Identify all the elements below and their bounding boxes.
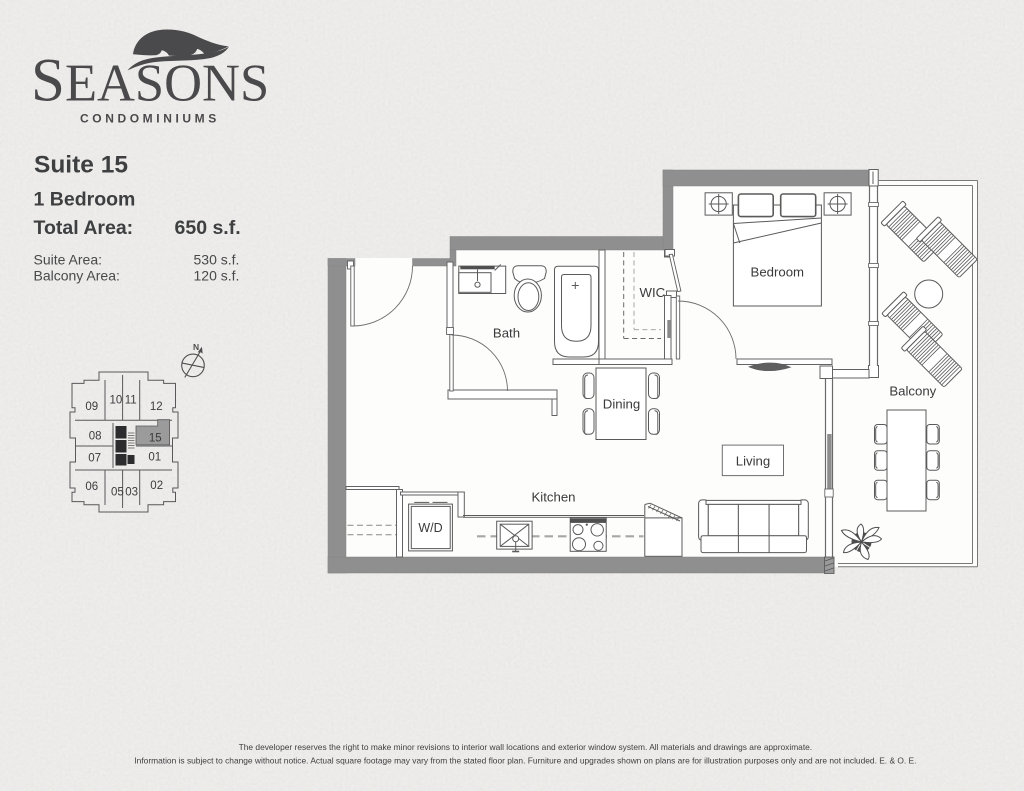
- svg-text:08: 08: [89, 431, 102, 443]
- svg-text:N: N: [193, 342, 199, 352]
- svg-text:The developer reserves the rig: The developer reserves the right to make…: [239, 742, 812, 752]
- svg-text:Bedroom: Bedroom: [751, 264, 805, 279]
- svg-text:CONDOMINIUMS: CONDOMINIUMS: [80, 112, 220, 126]
- svg-text:07: 07: [88, 453, 101, 465]
- svg-text:650 s.f.: 650 s.f.: [175, 217, 241, 239]
- svg-text:11: 11: [125, 395, 137, 407]
- svg-text:02: 02: [150, 480, 163, 492]
- svg-text:SEASONS: SEASONS: [31, 48, 269, 115]
- svg-text:1 Bedroom: 1 Bedroom: [34, 189, 136, 211]
- svg-text:Balcony Area:: Balcony Area:: [34, 268, 120, 284]
- svg-text:05: 05: [111, 487, 124, 499]
- svg-text:09: 09: [85, 401, 98, 413]
- svg-text:01: 01: [148, 452, 161, 464]
- svg-text:Kitchen: Kitchen: [532, 490, 576, 505]
- svg-text:Living: Living: [736, 453, 770, 468]
- svg-text:Bath: Bath: [493, 326, 520, 341]
- svg-text:Dining: Dining: [603, 396, 640, 411]
- svg-text:Suite Area:: Suite Area:: [34, 251, 103, 267]
- svg-text:10: 10: [110, 395, 123, 407]
- svg-text:Total Area:: Total Area:: [34, 217, 134, 239]
- svg-text:530 s.f.: 530 s.f.: [194, 251, 240, 267]
- svg-text:W/D: W/D: [418, 521, 442, 535]
- svg-text:Balcony: Balcony: [889, 384, 936, 399]
- svg-text:Suite 15: Suite 15: [34, 152, 128, 179]
- svg-text:WIC: WIC: [640, 285, 666, 300]
- svg-text:12: 12: [150, 401, 163, 413]
- svg-text:15: 15: [149, 433, 162, 445]
- svg-text:03: 03: [125, 487, 138, 499]
- svg-text:120 s.f.: 120 s.f.: [194, 268, 240, 284]
- svg-text:06: 06: [85, 481, 98, 493]
- svg-text:Information is subject to chan: Information is subject to change without…: [134, 755, 916, 765]
